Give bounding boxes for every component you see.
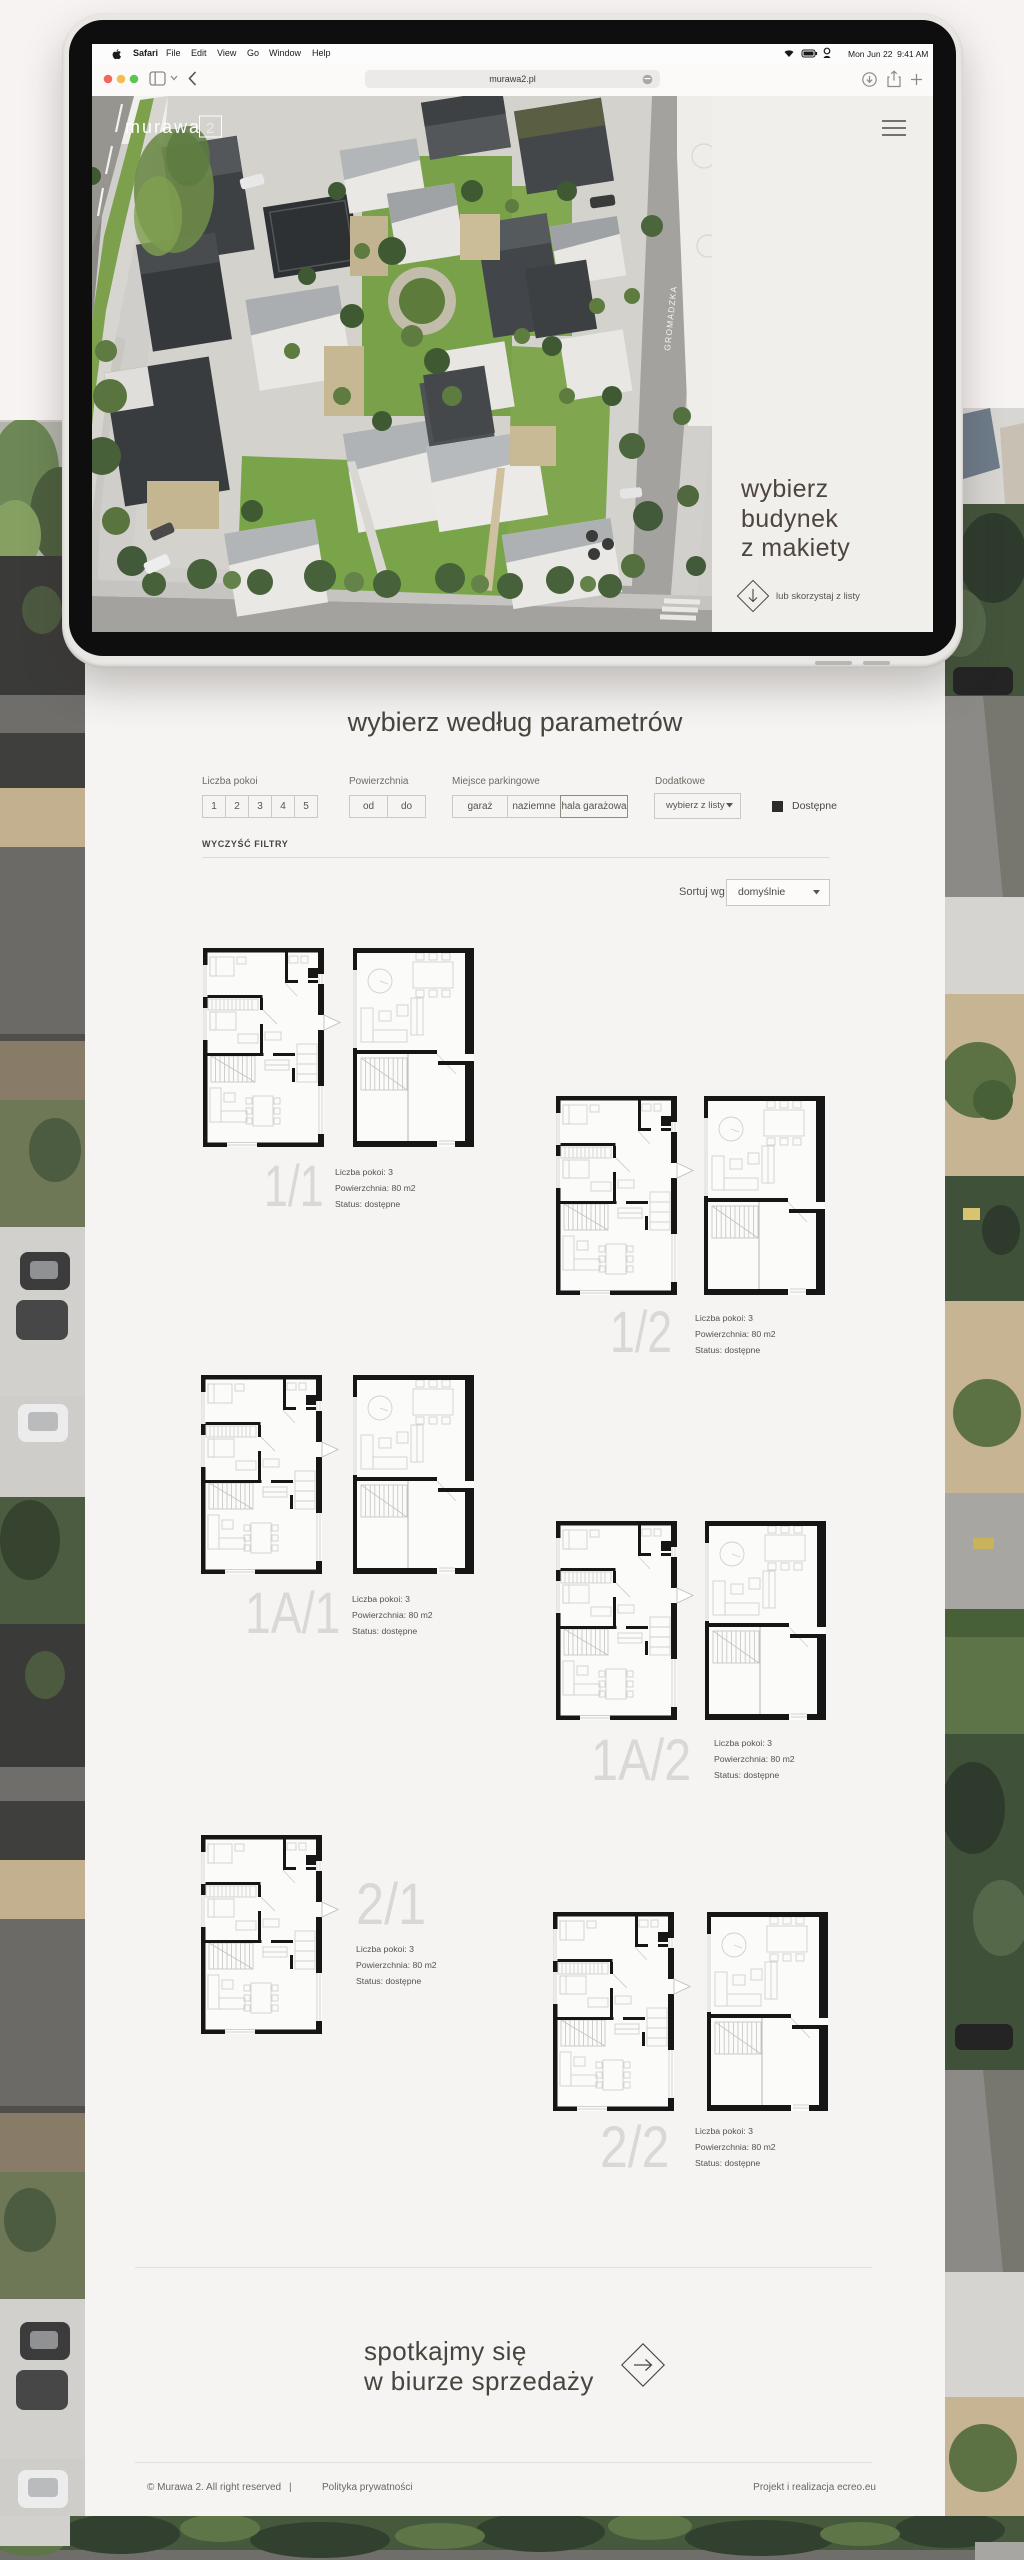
svg-text:murawa: murawa xyxy=(125,117,201,137)
svg-text:2: 2 xyxy=(206,120,214,137)
